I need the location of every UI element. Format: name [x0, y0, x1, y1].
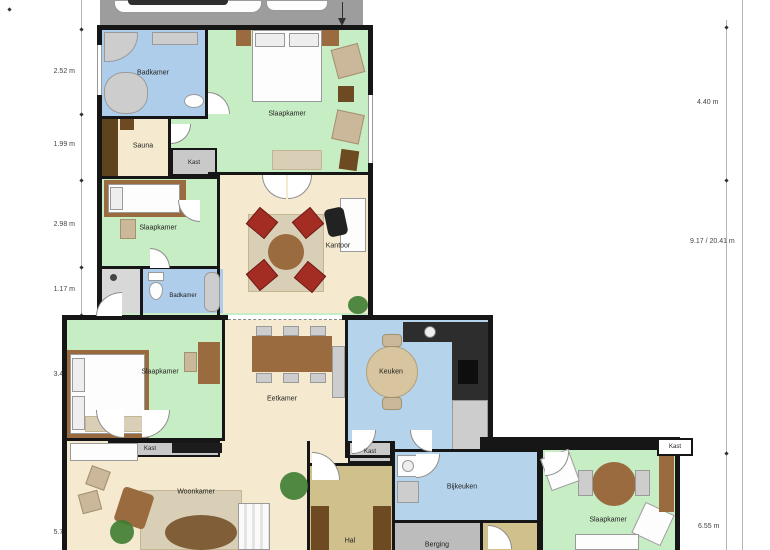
tick — [7, 7, 11, 11]
room-label-kast-2: Kast — [144, 446, 156, 452]
bathroom-cabinet — [152, 32, 198, 45]
kitchen-sink — [424, 326, 436, 338]
chair — [635, 470, 650, 496]
dim-label: 9.17 / 20.41 m — [690, 238, 735, 245]
wall — [395, 520, 537, 523]
window-sliding — [228, 315, 342, 320]
pillow — [255, 33, 285, 47]
sink — [184, 94, 204, 108]
bed — [575, 534, 639, 550]
tick — [79, 112, 83, 116]
car-windshield — [128, 0, 228, 5]
sofa — [238, 503, 270, 550]
chair — [256, 326, 272, 336]
dim-label: 1.99 m — [54, 141, 75, 148]
room-label-slaapkamer-4: Slaapkamer — [589, 517, 626, 524]
room-label-kast-4: Kast — [669, 444, 681, 450]
tick — [724, 25, 728, 29]
pillow — [110, 187, 123, 210]
tick — [724, 451, 728, 455]
dryer — [397, 481, 419, 503]
dimension-line-right-outer — [742, 0, 743, 550]
toilet-tank — [148, 272, 164, 281]
tv-cabinet — [172, 443, 222, 453]
cabinet — [659, 456, 674, 512]
stove — [458, 360, 478, 384]
wall — [345, 320, 348, 458]
chair — [310, 326, 326, 336]
sideboard — [332, 346, 345, 398]
pillow — [72, 396, 85, 430]
chair — [382, 397, 402, 410]
room-label-badkamer-1: Badkamer — [137, 70, 169, 77]
wall — [140, 269, 143, 316]
nightstand — [236, 30, 251, 46]
car-hood — [266, 0, 328, 11]
wall — [395, 449, 537, 452]
floor-plan: 2.52 m 1.99 m 2.98 m 1.17 m 3.41 m 5.74 … — [0, 0, 770, 550]
wall — [67, 438, 222, 441]
dim-label: 6.55 m — [698, 523, 719, 530]
window — [368, 95, 373, 163]
side-table — [338, 86, 354, 102]
room-label-badkamer-2: Badkamer — [169, 293, 196, 299]
dim-label: 1.17 m — [54, 286, 75, 293]
round-table — [592, 462, 636, 506]
dim-label: 4.40 m — [697, 99, 718, 106]
chair — [256, 373, 272, 383]
sauna-floor-strip — [102, 119, 118, 176]
chair — [283, 373, 299, 383]
washer-door — [402, 460, 414, 472]
window — [97, 45, 102, 95]
room-label-kantoor: Kantoor — [326, 243, 351, 250]
coffee-table — [165, 515, 237, 550]
room-label-berging: Berging — [425, 542, 449, 549]
dining-table — [252, 336, 332, 372]
chair — [578, 470, 593, 496]
room-label-woonkamer: Woonkamer — [177, 489, 215, 496]
wall — [102, 116, 208, 119]
wall — [480, 523, 483, 550]
hall-cabinet — [373, 506, 391, 550]
chair — [382, 334, 402, 347]
hall-cabinet — [311, 506, 329, 550]
nightstand — [322, 30, 339, 46]
tick — [79, 27, 83, 31]
plant — [348, 296, 368, 314]
plant — [280, 472, 308, 500]
room-label-sauna: Sauna — [133, 143, 153, 150]
room-label-slaapkamer-1: Slaapkamer — [268, 111, 305, 118]
room-label-bijkeuken: Bijkeuken — [447, 484, 477, 491]
room-label-hal: Hal — [345, 538, 356, 545]
wall — [222, 320, 225, 441]
room-label-kast-1: Kast — [188, 160, 200, 166]
pillow — [72, 358, 85, 392]
sauna-heater — [120, 119, 134, 130]
bathtub — [104, 72, 148, 114]
wall — [307, 441, 310, 550]
dresser — [198, 342, 220, 384]
room-label-keuken: Keuken — [379, 369, 403, 376]
room-label-slaapkamer-3: Slaapkamer — [141, 369, 178, 376]
room-label-kast-3: Kast — [364, 449, 376, 455]
tick — [724, 178, 728, 182]
chair — [120, 219, 136, 239]
chair — [283, 326, 299, 336]
pillow — [289, 33, 319, 47]
rug — [272, 150, 322, 170]
kitchen-counter — [403, 322, 488, 342]
tick — [79, 178, 83, 182]
side-table — [339, 149, 360, 171]
shower-head — [110, 274, 117, 281]
chair — [184, 352, 197, 372]
plant — [110, 520, 134, 544]
dim-label: 2.98 m — [54, 221, 75, 228]
room-label-eetkamer: Eetkamer — [267, 396, 297, 403]
room-label-slaapkamer-2: Slaapkamer — [139, 225, 176, 232]
desk — [70, 443, 138, 461]
dimension-line-right-inner — [726, 20, 727, 550]
dim-label: 2.52 m — [54, 68, 75, 75]
chair — [310, 373, 326, 383]
tick — [79, 265, 83, 269]
bathtub — [204, 272, 220, 312]
round-table — [268, 234, 304, 270]
wall — [102, 176, 220, 179]
